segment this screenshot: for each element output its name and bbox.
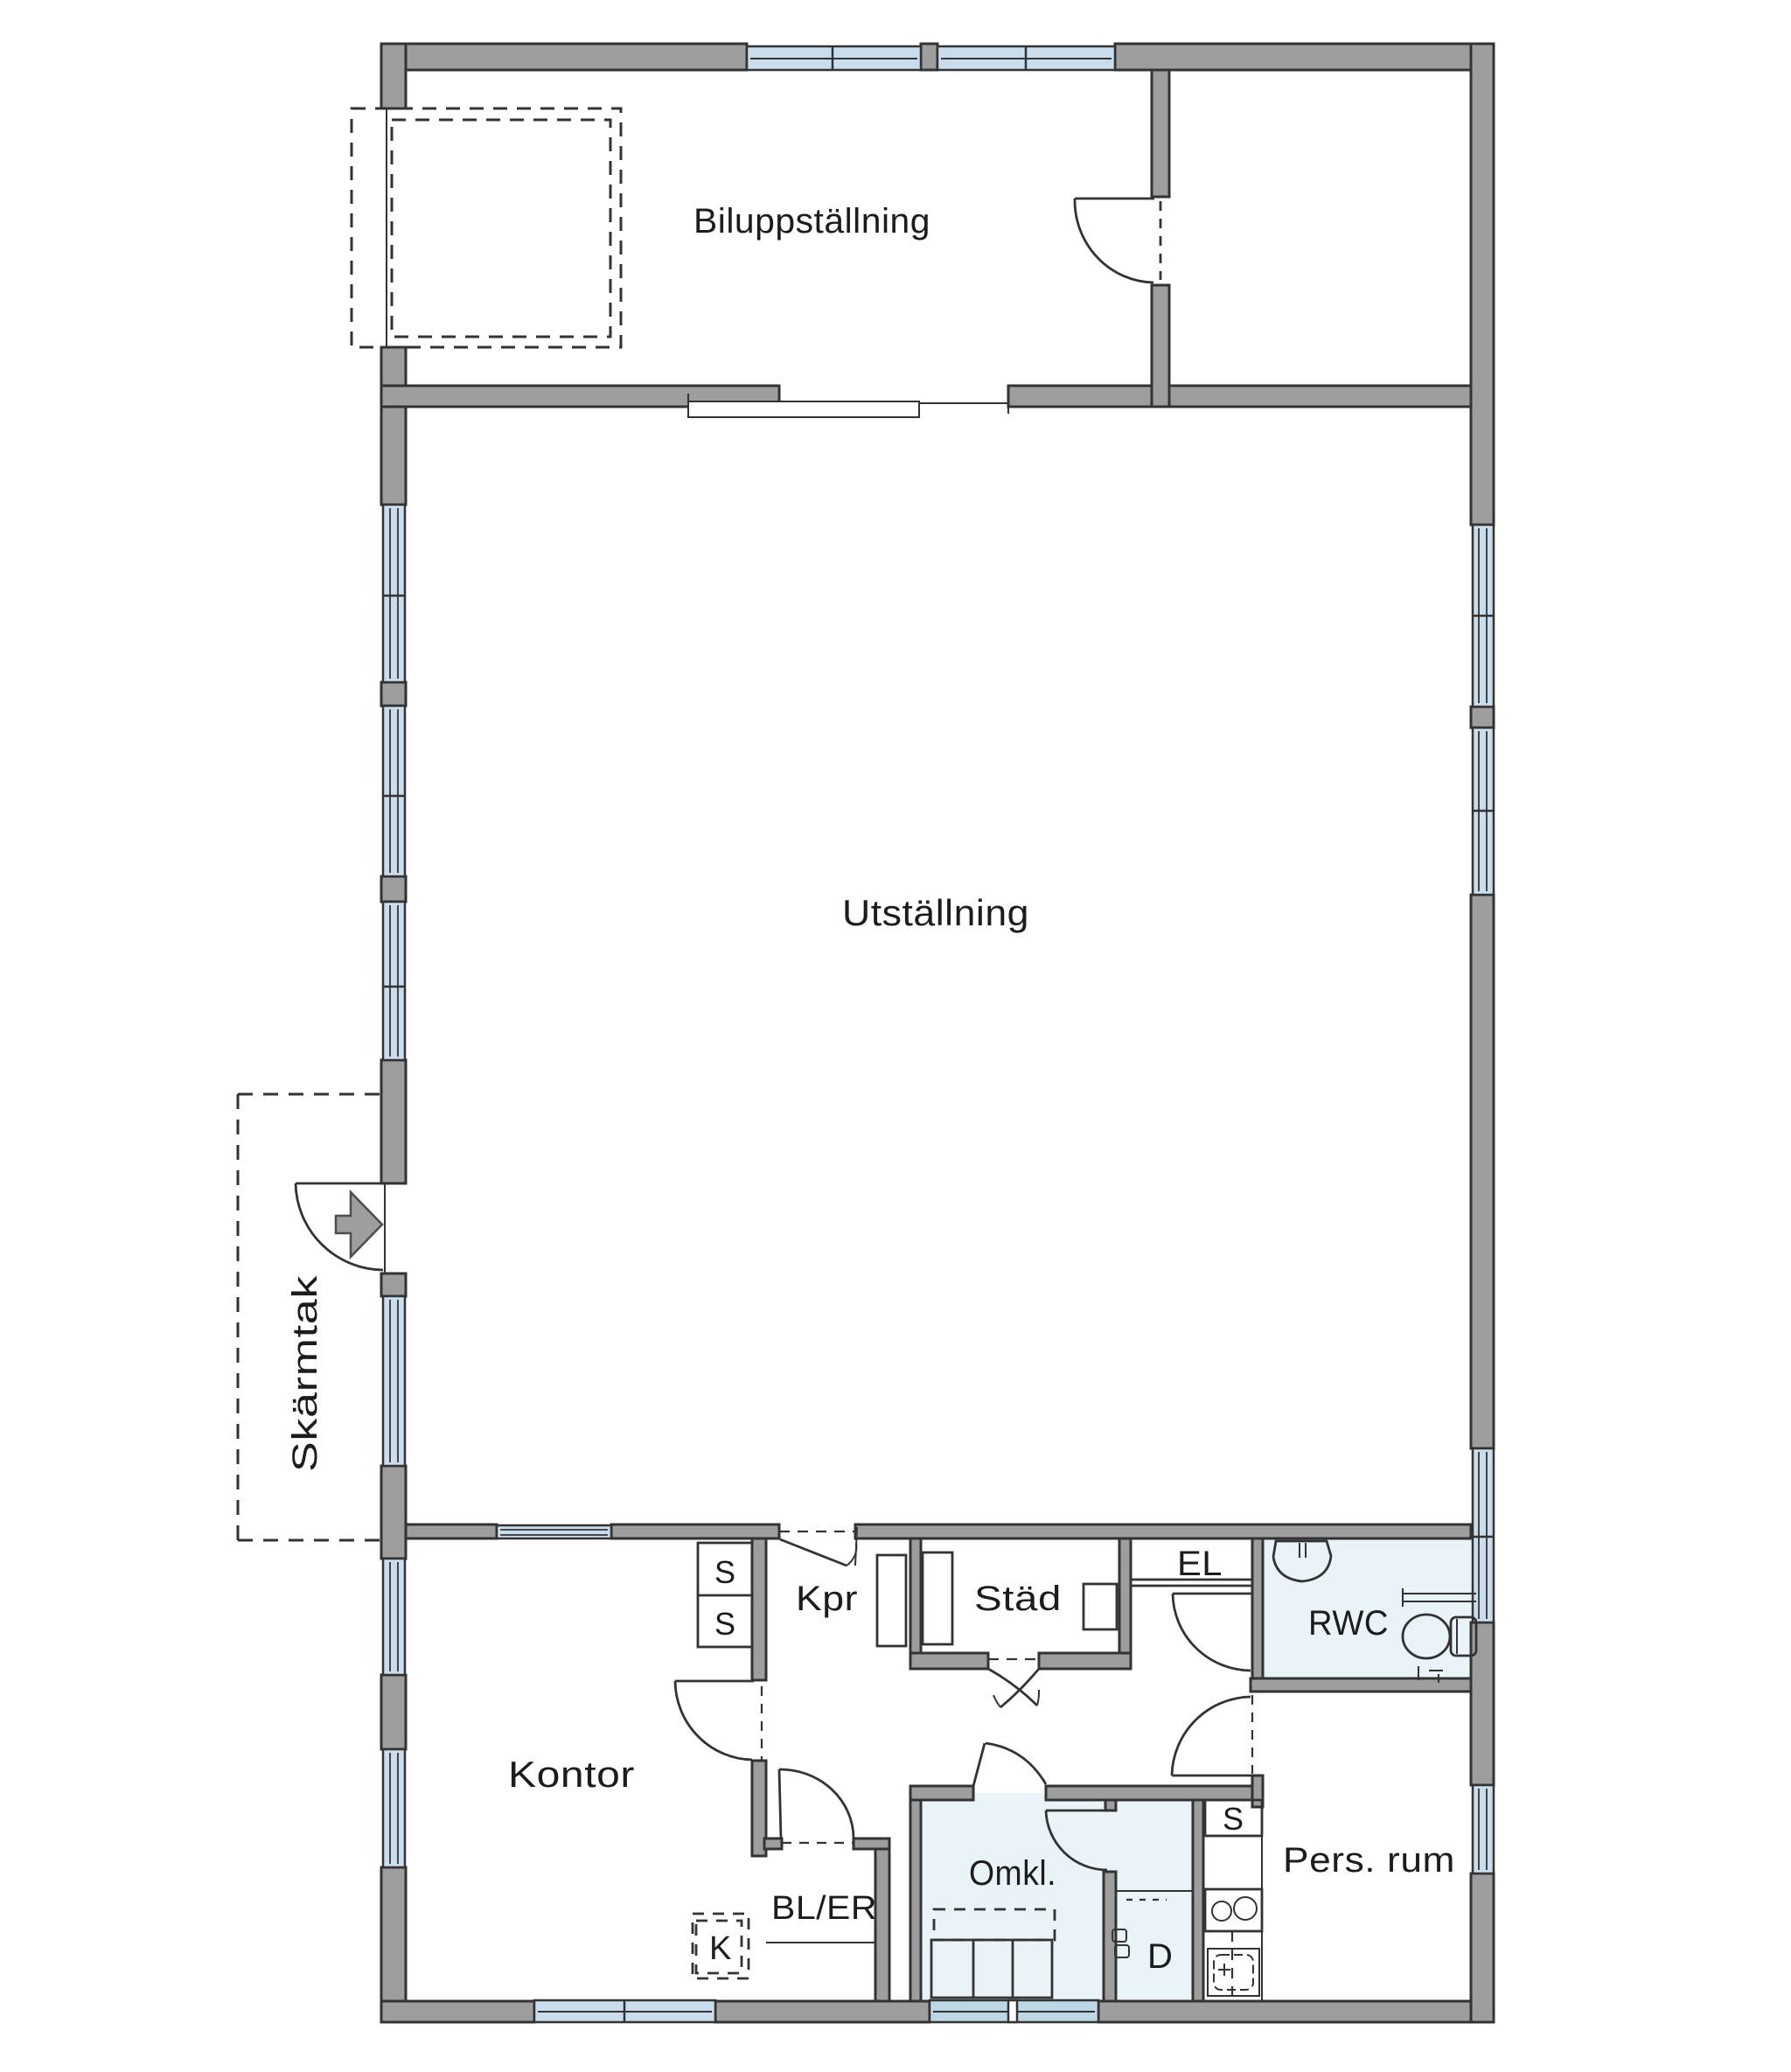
svg-text:S: S: [714, 1554, 736, 1590]
svg-text:EL: EL: [1177, 1545, 1223, 1583]
svg-text:S: S: [1223, 1801, 1244, 1837]
svg-text:Utställning: Utställning: [842, 892, 1029, 933]
svg-text:Skärmtak: Skärmtak: [286, 1274, 324, 1472]
svg-text:BL/ER: BL/ER: [771, 1890, 877, 1927]
svg-text:S: S: [714, 1606, 736, 1642]
svg-text:D: D: [1147, 1937, 1173, 1976]
svg-text:RWC: RWC: [1308, 1604, 1389, 1643]
svg-text:Pers. rum: Pers. rum: [1283, 1841, 1455, 1880]
svg-text:Kpr: Kpr: [796, 1580, 858, 1618]
svg-text:Biluppställning: Biluppställning: [693, 202, 930, 241]
svg-text:Kontor: Kontor: [508, 1754, 635, 1795]
svg-text:K: K: [709, 1930, 732, 1967]
svg-text:Omkl.: Omkl.: [969, 1854, 1056, 1893]
svg-text:Städ: Städ: [974, 1580, 1062, 1618]
